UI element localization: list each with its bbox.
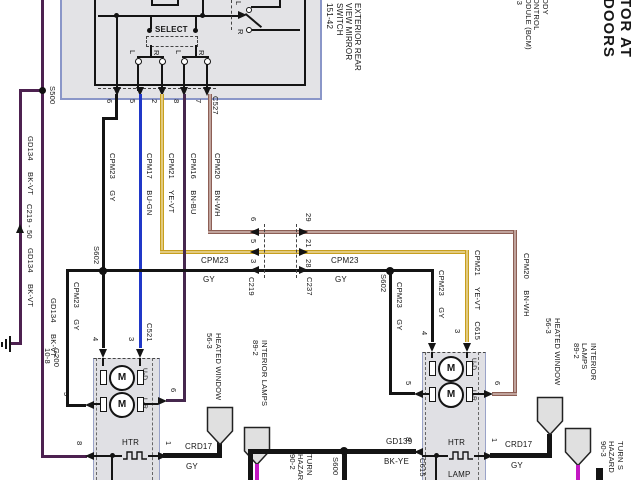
selector-l-label: L <box>233 1 242 5</box>
switch-pin-5: 5 <box>127 99 136 103</box>
wire-crd17 <box>163 453 222 458</box>
switch-pin-8: 8 <box>171 99 180 103</box>
right-mirror-pin1: 1 <box>489 438 498 442</box>
lamp-label: LAMP <box>448 470 471 479</box>
connector-arrow <box>250 248 259 256</box>
pin-arrow-down <box>428 343 436 352</box>
ground-g200-label: G200 10-8 <box>43 348 60 367</box>
heater-resistor-symbol <box>448 449 474 462</box>
connector-c615-label: C615 <box>417 458 426 477</box>
wire-cpm16 <box>166 399 186 402</box>
selector-dashed-line <box>231 0 232 30</box>
motor-stub <box>139 358 141 366</box>
wire-cpm23 <box>431 269 434 342</box>
wire-label-cpm23: CPM23 GY <box>394 282 403 331</box>
wire-cpm21 <box>160 250 469 254</box>
right-mirror-pin6: 6 <box>492 381 501 385</box>
splice-s600-dot <box>340 447 348 455</box>
switch-pin-7: 7 <box>193 99 202 103</box>
switch-pin-6: 6 <box>104 99 113 103</box>
motor-bracket <box>429 361 436 376</box>
pin-arrow-down <box>136 349 144 358</box>
pin-arrow-right <box>484 390 493 398</box>
wire-gd139 <box>248 449 416 454</box>
ground-symbol-bar <box>5 339 7 349</box>
heater-resistor-symbol <box>122 449 148 462</box>
motor-bracket <box>100 370 107 385</box>
wiring-diagram: SELECT L R L R L R 6 5 2 8 7 C527 TOR AT… <box>0 0 640 480</box>
selector-line <box>252 29 300 31</box>
motor-bracket <box>100 397 107 412</box>
htr-label: HTR <box>122 438 139 447</box>
splice-s602-label: S602 <box>91 246 100 264</box>
mirror-switch-label: EXTERIOR REAR VIEW MIRROR SWITCH 151-42 <box>325 3 362 71</box>
connector-c521-label: C521 <box>144 323 153 342</box>
switch-top-line <box>202 0 204 16</box>
c219-pin: 5 <box>248 239 257 243</box>
c219-pin: 3 <box>248 259 257 263</box>
splice-s500-dot <box>39 87 46 94</box>
connector-c219-label: C219 <box>246 277 255 296</box>
contact-label-l: L <box>173 50 182 54</box>
wire-label-cpm23-name: CPM23 <box>201 256 229 265</box>
lamp-feed-line <box>111 455 113 480</box>
connector-arrow <box>250 228 259 236</box>
htr-line <box>93 455 122 457</box>
wire-cpm20 <box>513 230 517 396</box>
ground-symbol-bar <box>9 336 11 352</box>
wire-interior-lamp <box>576 465 580 480</box>
left-mirror-dashed-edge <box>152 358 153 480</box>
left-mirror-pin1: 1 <box>163 441 172 445</box>
bcm-module-label: ODY ONTROL ODULE (BCM) -3 <box>515 0 550 50</box>
wire-gd134 <box>41 0 44 92</box>
pin-arrow-right <box>158 397 167 405</box>
wire-cpm17 <box>139 94 142 348</box>
wire-gd134 <box>41 455 87 458</box>
wire-cpm23 <box>102 272 105 348</box>
wire-label-gd134: GD134 BK-VT <box>25 248 34 307</box>
left-mirror-pin6: 6 <box>168 388 177 392</box>
left-mirror-leftright-motor: M <box>109 392 135 418</box>
wire-cpm21 <box>465 250 469 342</box>
motor-lr-label: L-R <box>470 390 477 401</box>
right-mirror-leftright-motor: M <box>438 382 464 408</box>
wire-label-cpm23: CPM23 GY <box>107 153 116 202</box>
select-stub <box>150 15 152 29</box>
connector-c219-50-arrow <box>16 224 24 233</box>
wire-label-cpm16: CPM16 BN-BU <box>188 153 197 215</box>
switch-bus-line <box>98 15 240 17</box>
lamp-feed-line <box>435 455 437 480</box>
wire-turn-hazard <box>596 468 603 480</box>
connector-arrow <box>299 248 308 256</box>
motor-stub <box>466 352 468 358</box>
page-title-fragment: TOR AT DOORS <box>600 0 635 58</box>
left-mirror-pin3: 3 <box>126 337 135 341</box>
wire-label-cpm20: CPM20 BN-WH <box>212 153 221 217</box>
connector-c219-dashed <box>264 224 265 278</box>
switch-pin-2: 2 <box>149 99 158 103</box>
motor-stub <box>102 358 104 366</box>
motor-bracket <box>429 387 436 402</box>
c237-pin: 29 <box>303 213 312 222</box>
contact-label-r: R <box>196 50 205 56</box>
right-mirror-dashed-edge <box>478 352 479 480</box>
select-dashed-box <box>146 36 198 47</box>
offpage-turn-hazard-label: TURN HAZAR 90-2 <box>287 454 313 480</box>
c237-pin: 21 <box>303 239 312 248</box>
right-mirror-pin8: 8 <box>403 437 412 441</box>
wire-cpm23 <box>102 117 105 273</box>
wire-gd134 <box>41 89 44 458</box>
wire-label-cpm21: CPM21 YE-VT <box>166 153 175 213</box>
right-mirror-pin5: 5 <box>403 381 412 385</box>
pin-arrow-left <box>414 448 423 456</box>
wire-interior-lamp <box>255 464 259 480</box>
right-mirror-updown-motor: M <box>438 356 464 382</box>
selector-r-label: R <box>235 29 244 35</box>
left-mirror-pin5: 5 <box>61 392 70 396</box>
c237-pin: 28 <box>303 259 312 268</box>
wire-crd17 <box>547 434 552 455</box>
motor-ud-label: U-D <box>470 358 477 370</box>
wire-crd17 <box>490 453 552 458</box>
connector-arrow <box>250 266 259 274</box>
wire-cpm23 <box>66 404 86 407</box>
connector-arrow <box>299 228 308 236</box>
splice-s500-label: S500 <box>47 86 56 104</box>
wire-label-cpm23-color: GY <box>335 275 347 284</box>
wire-cpm20 <box>492 392 517 396</box>
htr-line <box>474 455 484 457</box>
wire-cpm23 <box>389 272 392 394</box>
motor-stub <box>431 352 433 358</box>
selector-line <box>251 6 281 8</box>
offpage-connector <box>536 396 564 436</box>
wire-label-gd139-color: BK-YE <box>384 457 409 466</box>
wire-gd134 <box>19 89 22 345</box>
wire-label-cpm20: CPM20 BN-WH <box>521 253 530 317</box>
wire-label-cpm21-c615: CPM21 YE-VT C615 <box>472 250 481 340</box>
offpage-heated-window-label: HEATED WINDOW 56-3 <box>205 333 222 400</box>
left-mirror-updown-motor: M <box>109 365 135 391</box>
left-mirror-dashed-edge <box>96 358 97 480</box>
wire-gd134 <box>10 342 22 345</box>
wire-gd139 <box>248 449 253 480</box>
select-label: SELECT <box>155 25 188 34</box>
select-stub <box>195 15 197 29</box>
connector-c219-50-label: C219 - 50 <box>24 204 33 239</box>
offpage-interior-lamps-label: INTERIOR LAMPS 89-2 <box>571 343 597 386</box>
switch-top-line <box>151 4 179 6</box>
offpage-connector <box>564 427 592 467</box>
htr-label: HTR <box>448 438 465 447</box>
contact-label-r: R <box>151 50 160 56</box>
splice-s602-label: S602 <box>378 274 387 292</box>
motor-ud-label: U-D <box>141 368 148 380</box>
wire-cpm23 <box>66 269 69 407</box>
offpage-connector <box>206 406 234 446</box>
left-mirror-pin8: 8 <box>74 441 83 445</box>
wire-cpm21 <box>160 94 164 254</box>
connector-c237-dashed <box>296 224 297 278</box>
ground-symbol-bar <box>1 342 3 347</box>
switch-feed-line <box>116 15 118 91</box>
pin-arrow-down <box>463 343 471 352</box>
contact-label-l: L <box>127 50 136 54</box>
motor-lr-label: L-R <box>141 398 148 409</box>
wire-label-cpm17: CPM17 BU-GN <box>144 153 153 215</box>
splice-s600-label: S600 <box>330 457 339 475</box>
connector-c237-label: C237 <box>304 277 313 296</box>
offpage-heated-window-label: HEATED WINDOW 56-3 <box>544 318 561 385</box>
wire-label-cpm23: CPM23 GY <box>71 282 80 331</box>
wire-label-cpm23: CPM23 GY <box>436 270 445 319</box>
wire-label-gd134: GD134 BK-VT <box>25 136 34 195</box>
pin-arrow-down <box>99 349 107 358</box>
wire-label-cpm23-name: CPM23 <box>331 256 359 265</box>
htr-line <box>148 455 158 457</box>
wire-cpm16 <box>183 94 186 402</box>
selector-line <box>279 0 281 7</box>
offpage-interior-lamps-label: INTERIOR LAMPS 89-2 <box>251 340 268 406</box>
wire-label-cpm23-color: GY <box>203 275 215 284</box>
pin-arrow-left <box>85 401 94 409</box>
wire-label-crd17-color: GY <box>511 461 523 470</box>
wire-cpm23 <box>389 392 415 395</box>
left-mirror-pin4: 4 <box>90 337 99 341</box>
wire-label-crd17: CRD17 <box>505 440 532 449</box>
wire-label-crd17-color: GY <box>186 462 198 471</box>
pin-arrow-left <box>414 390 423 398</box>
pin-arrow-left <box>85 452 94 460</box>
right-mirror-pin3: 3 <box>452 329 461 333</box>
c219-pin: 6 <box>248 217 257 221</box>
right-mirror-pin4: 4 <box>419 331 428 335</box>
